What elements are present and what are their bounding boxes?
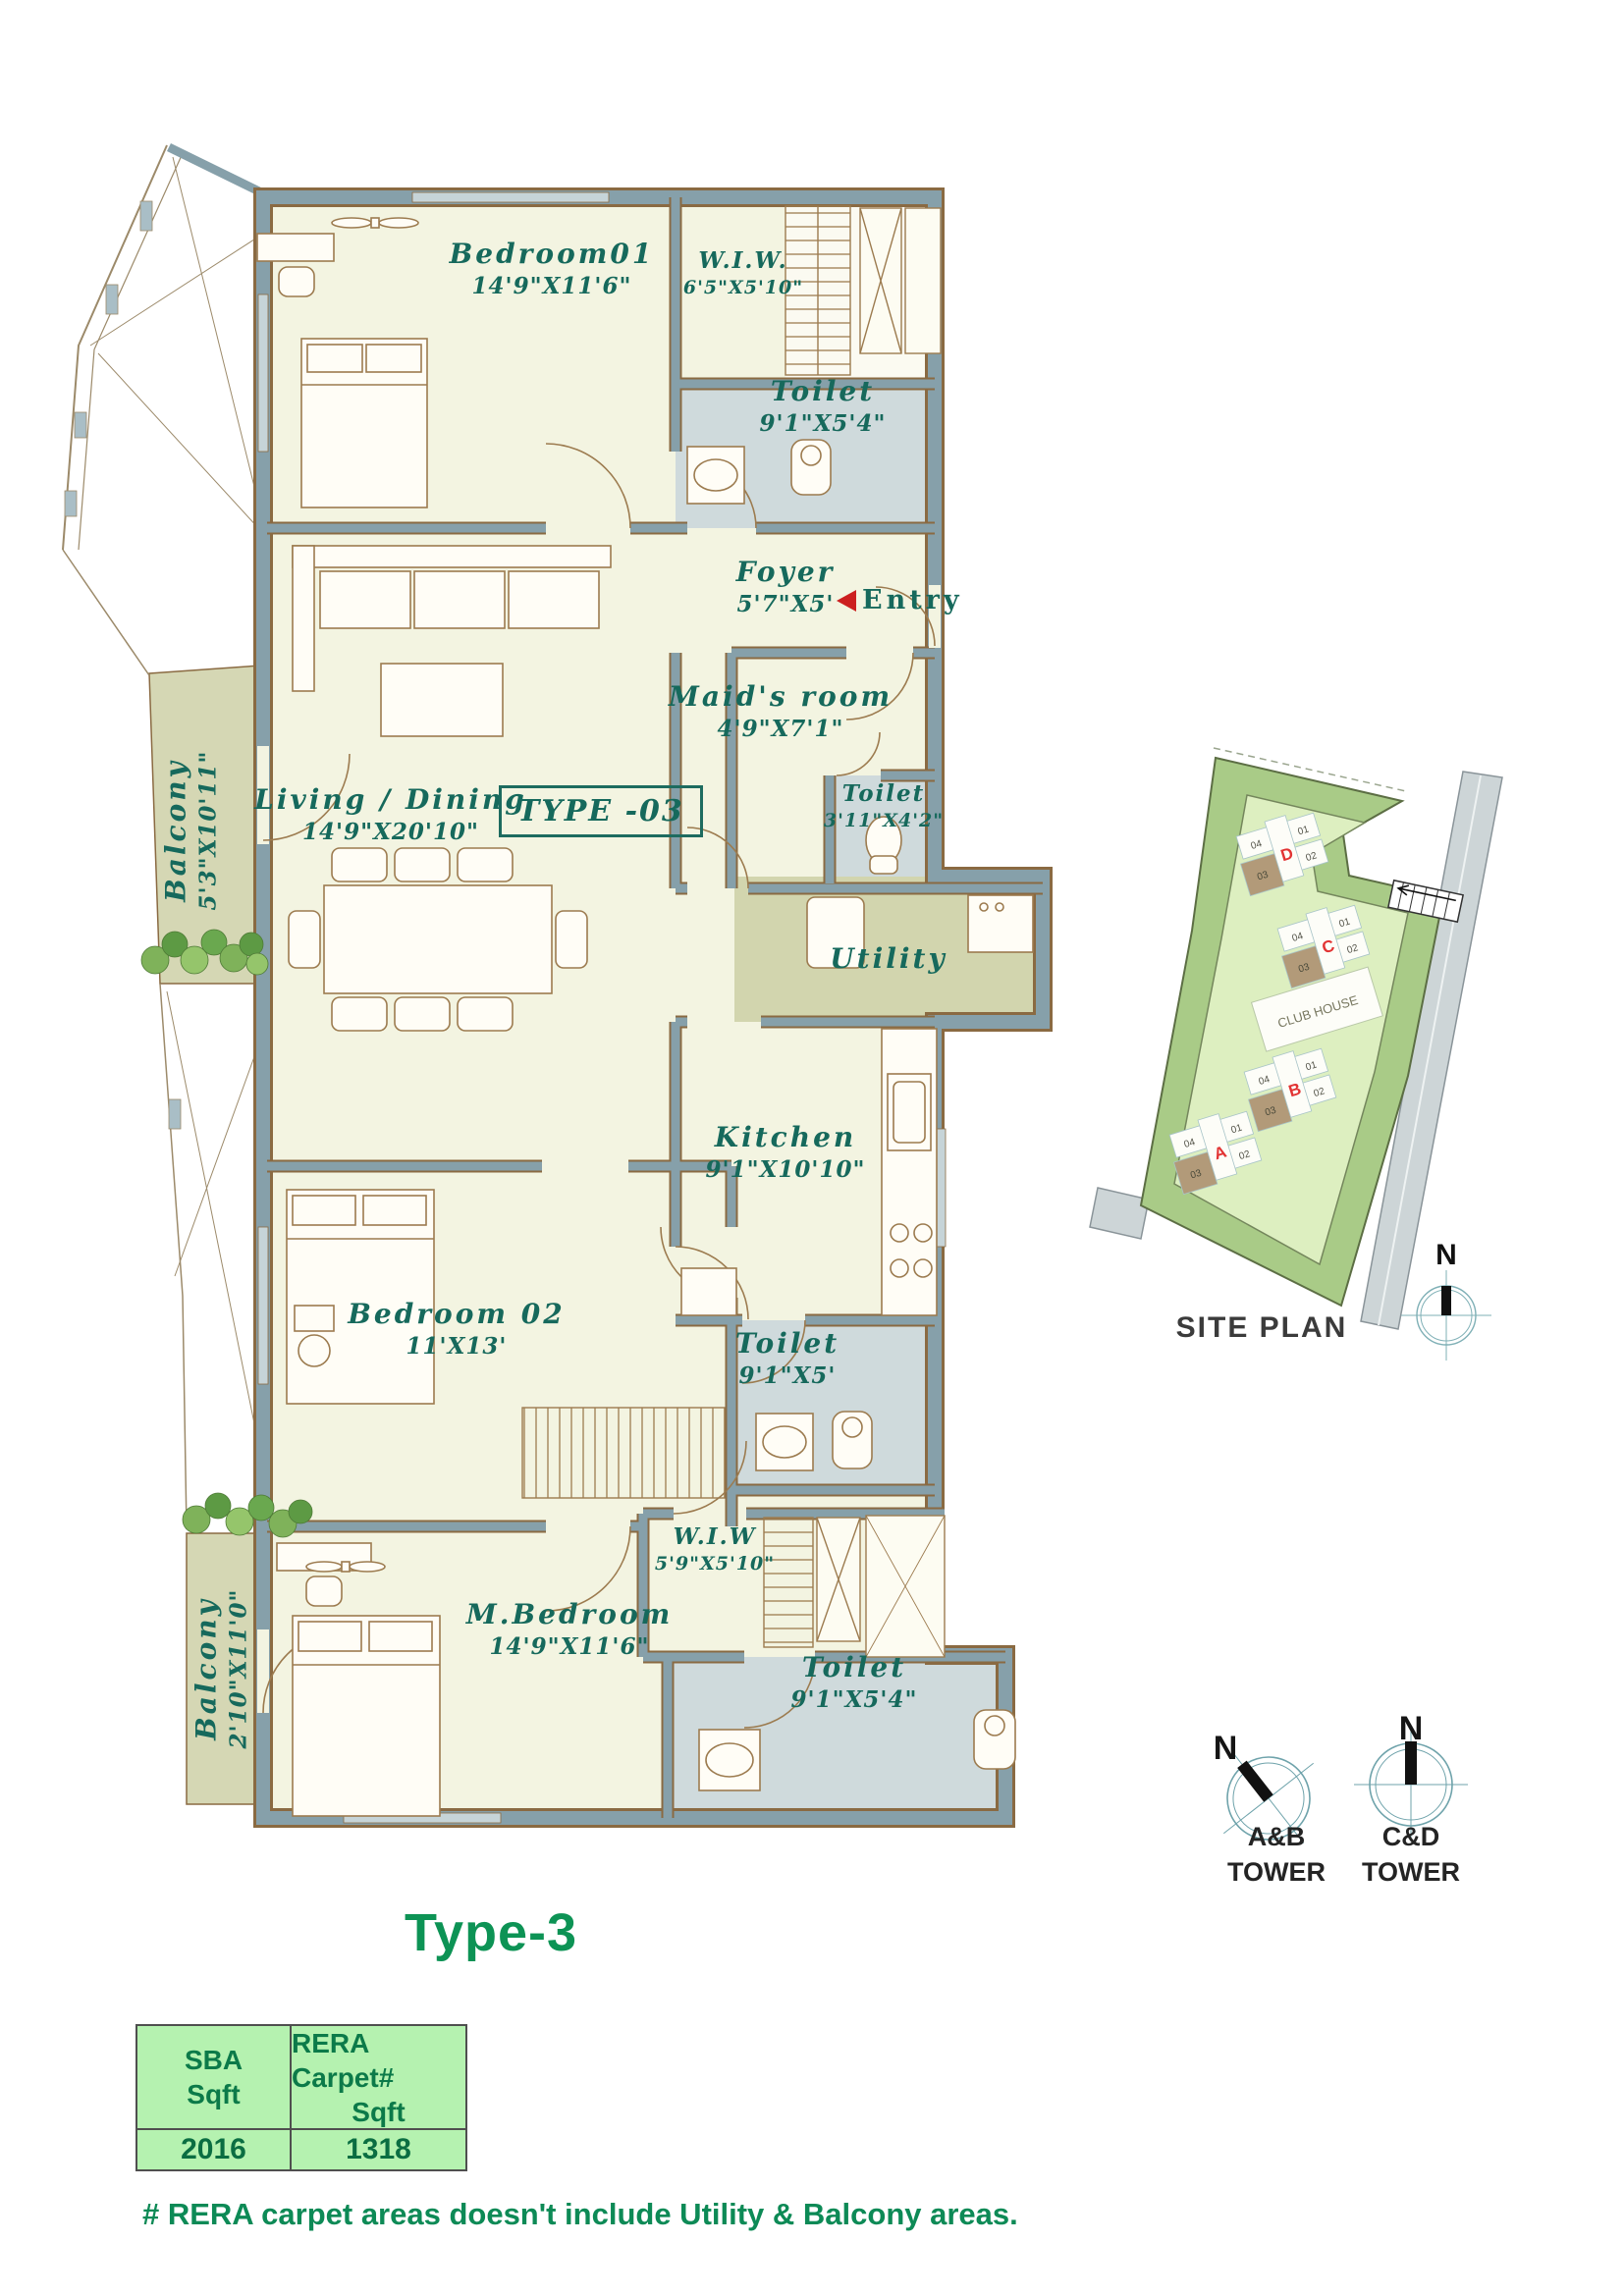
room-label-bedroom01: Bedroom01 14'9"X11'6" [450, 238, 655, 299]
ab-tower-compass-icon: N [1189, 1719, 1349, 1879]
ab-tower-word: TOWER [1227, 1857, 1326, 1888]
room-label-utility: Utility [830, 942, 947, 975]
page-title: Type-3 [405, 1902, 577, 1963]
floor-plan-page: CLUB HOUSE 04 01 03 02 D 04 01 03 02 C [0, 0, 1624, 2296]
svg-text:N: N [1214, 1730, 1238, 1767]
room-label-wiw1: W.I.W. 6'5"X5'10" [683, 247, 803, 298]
type-badge: TYPE -03 [499, 785, 703, 837]
entry-label: Entry [862, 585, 963, 615]
room-label-maids-room: Maid's room 4'9"X7'1" [669, 680, 893, 742]
svg-text:N: N [1435, 1239, 1457, 1271]
cd-tower-word: TOWER [1362, 1857, 1460, 1888]
area-table-value-sba: 2016 [137, 2130, 292, 2169]
area-table: SBA Sqft RERA Carpet# Sqft 2016 1318 [135, 2024, 467, 2171]
room-label-balcony2: Balcony 2'10"X11'0" [190, 1589, 252, 1749]
ceiling-fan-icon [306, 1562, 385, 1572]
site-plan-label: SITE PLAN [1176, 1311, 1348, 1345]
cd-tower-name: C&D [1382, 1822, 1440, 1852]
svg-text:N: N [1399, 1710, 1424, 1747]
room-label-wiw2: W.I.W 5'9"X5'10" [655, 1523, 775, 1575]
footnote: # RERA carpet areas doesn't include Util… [142, 2197, 1018, 2232]
room-label-m-bedroom: M.Bedroom 14'9"X11'6" [466, 1598, 674, 1660]
room-label-kitchen: Kitchen 9'1"X10'10" [706, 1121, 866, 1183]
area-table-header-sba: SBA Sqft [137, 2026, 292, 2130]
room-label-foyer: Foyer 5'7"X5' [736, 556, 836, 617]
ceiling-fan-icon [332, 218, 418, 228]
road-stub [1090, 1188, 1149, 1239]
room-label-toilet4: Toilet 9'1"X5'4" [791, 1651, 918, 1713]
site-plan: CLUB HOUSE 04 01 03 02 D 04 01 03 02 C [1090, 748, 1502, 1361]
room-label-toilet3: Toilet 9'1"X5' [735, 1327, 839, 1389]
room-label-balcony1: Balcony 5'3"X10'11" [160, 751, 222, 911]
ab-tower-name: A&B [1248, 1822, 1306, 1852]
entry-marker: Entry [837, 585, 963, 615]
room-label-bedroom02: Bedroom 02 11'X13' [348, 1298, 566, 1360]
site-north-compass-icon: N [1401, 1239, 1491, 1361]
area-table-value-rera: 1318 [292, 2130, 465, 2169]
room-label-toilet2: Toilet 3'11"X4'2" [824, 780, 944, 831]
entry-arrow-icon [837, 590, 856, 612]
room-label-toilet1: Toilet 9'1"X5'4" [760, 375, 887, 437]
room-label-living-dining: Living / Dining 14'9"X20'10" [254, 783, 527, 845]
area-table-header-rera: RERA Carpet# Sqft [292, 2026, 465, 2130]
